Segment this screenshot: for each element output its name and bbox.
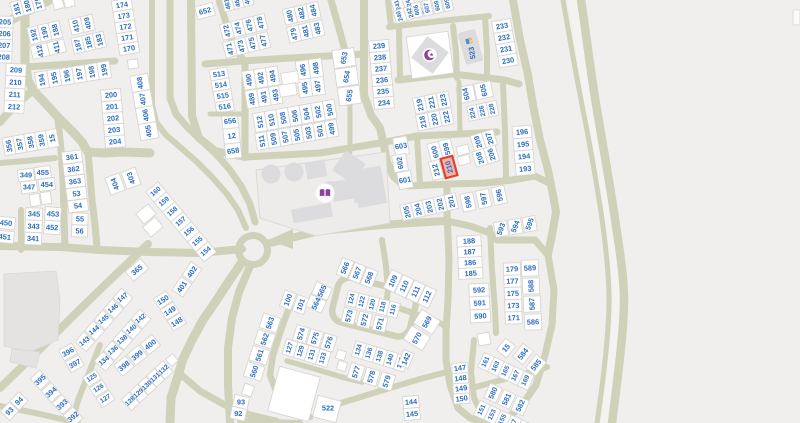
svg-text:236: 236	[375, 75, 388, 85]
svg-text:345: 345	[28, 209, 41, 218]
svg-text:145: 145	[405, 409, 418, 419]
svg-text:239: 239	[372, 41, 385, 51]
svg-text:656: 656	[223, 116, 236, 127]
svg-text:407: 407	[137, 92, 148, 105]
svg-text:591: 591	[473, 298, 486, 308]
svg-text:144: 144	[404, 397, 418, 407]
svg-text:235: 235	[376, 86, 389, 96]
svg-text:209: 209	[10, 65, 23, 75]
svg-text:452: 452	[46, 223, 59, 232]
svg-text:587: 587	[527, 298, 536, 311]
svg-text:195: 195	[49, 71, 60, 85]
svg-text:237: 237	[374, 64, 387, 74]
svg-text:196: 196	[515, 127, 528, 137]
svg-text:93: 93	[237, 398, 245, 407]
svg-text:197: 197	[74, 67, 85, 81]
svg-text:592: 592	[473, 285, 486, 295]
svg-text:513: 513	[212, 69, 225, 80]
svg-text:405: 405	[143, 124, 154, 137]
svg-text:179: 179	[506, 264, 519, 273]
svg-text:406: 406	[140, 108, 151, 121]
svg-text:522: 522	[322, 404, 334, 413]
svg-text:92: 92	[234, 409, 242, 418]
svg-text:453: 453	[47, 209, 60, 218]
svg-text:194: 194	[518, 151, 532, 161]
svg-text:188: 188	[463, 236, 476, 246]
svg-text:196: 196	[61, 69, 72, 83]
svg-text:201: 201	[105, 102, 118, 112]
svg-text:454: 454	[41, 180, 54, 189]
svg-text:361: 361	[65, 152, 78, 162]
svg-text:198: 198	[86, 65, 97, 79]
svg-text:514: 514	[214, 79, 228, 90]
svg-text:150: 150	[455, 393, 468, 404]
svg-text:205: 205	[0, 17, 11, 26]
svg-text:211: 211	[9, 90, 21, 100]
svg-text:516: 516	[218, 101, 231, 112]
svg-text:53: 53	[72, 189, 81, 199]
svg-text:210: 210	[9, 77, 22, 87]
svg-text:172: 172	[119, 21, 133, 32]
svg-text:149: 149	[454, 383, 467, 394]
svg-text:363: 363	[68, 176, 81, 186]
svg-text:586: 586	[527, 317, 540, 326]
svg-text:12: 12	[227, 131, 236, 141]
svg-text:179: 179	[32, 0, 44, 10]
svg-text:56: 56	[75, 226, 84, 235]
svg-text:208: 208	[0, 52, 10, 61]
svg-text:175: 175	[507, 289, 520, 298]
svg-text:498: 498	[311, 61, 322, 74]
svg-text:362: 362	[67, 164, 80, 174]
svg-text:200: 200	[104, 90, 117, 100]
svg-text:207: 207	[0, 41, 11, 50]
svg-text:451: 451	[0, 232, 11, 242]
svg-text:491: 491	[258, 90, 269, 104]
svg-text:496: 496	[298, 63, 309, 76]
svg-text:185: 185	[464, 269, 477, 279]
svg-text:170: 170	[122, 43, 136, 54]
svg-text:347: 347	[23, 183, 35, 192]
svg-text:187: 187	[463, 247, 476, 257]
svg-text:212: 212	[8, 102, 21, 112]
svg-text:203: 203	[108, 125, 121, 135]
svg-text:234: 234	[377, 98, 391, 108]
svg-text:450: 450	[0, 218, 13, 228]
svg-text:490: 490	[244, 73, 255, 87]
svg-text:171: 171	[507, 313, 520, 322]
svg-text:489: 489	[247, 92, 258, 106]
svg-text:55: 55	[76, 214, 85, 223]
svg-text:147: 147	[453, 363, 466, 374]
svg-text:173: 173	[507, 301, 520, 310]
svg-text:199: 199	[99, 63, 110, 77]
svg-text:186: 186	[464, 258, 477, 268]
svg-text:202: 202	[106, 113, 119, 123]
svg-text:341: 341	[27, 234, 40, 243]
svg-text:238: 238	[373, 52, 386, 62]
svg-text:588: 588	[526, 280, 535, 293]
svg-text:15: 15	[47, 134, 57, 144]
svg-text:658: 658	[226, 145, 239, 156]
svg-text:589: 589	[524, 263, 537, 272]
svg-text:495: 495	[300, 81, 311, 94]
svg-text:590: 590	[474, 311, 487, 321]
svg-text:492: 492	[255, 71, 266, 85]
svg-text:171: 171	[120, 32, 134, 43]
svg-text:195: 195	[517, 139, 530, 149]
svg-text:455: 455	[37, 168, 49, 177]
svg-text:173: 173	[117, 10, 131, 21]
svg-text:349: 349	[20, 171, 32, 180]
svg-text:515: 515	[216, 90, 229, 101]
svg-text:343: 343	[27, 222, 40, 231]
svg-text:193: 193	[519, 164, 532, 174]
svg-text:204: 204	[109, 137, 123, 147]
svg-text:206: 206	[0, 29, 11, 38]
svg-text:177: 177	[506, 276, 519, 285]
svg-text:148: 148	[454, 373, 467, 384]
svg-text:497: 497	[313, 79, 324, 92]
svg-text:408: 408	[135, 76, 146, 89]
